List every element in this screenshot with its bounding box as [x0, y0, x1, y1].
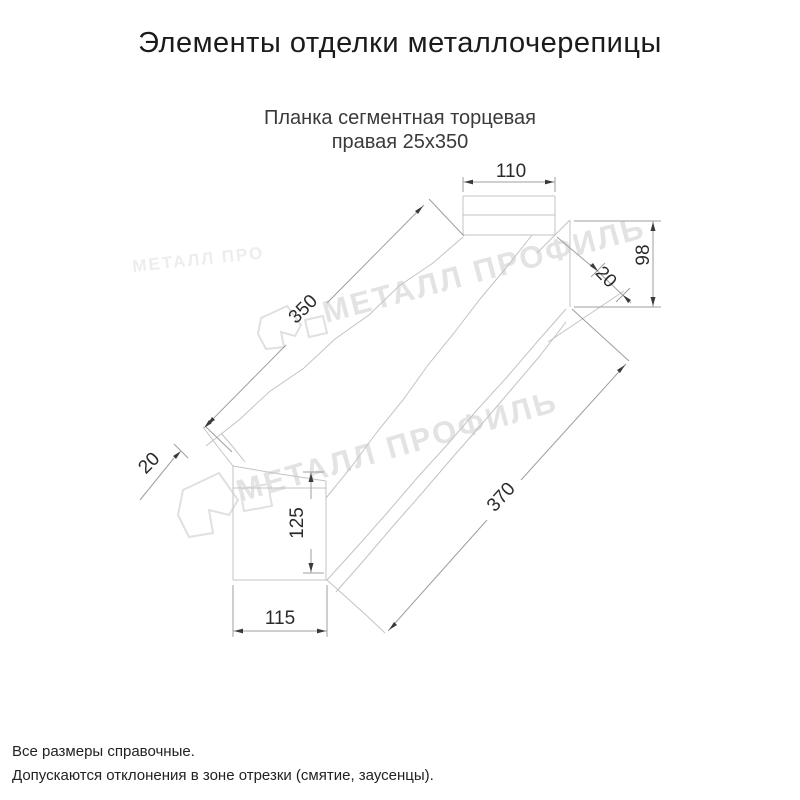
dim-label-20-left: 20: [134, 448, 164, 478]
dim-label-350: 350: [285, 291, 322, 328]
watermark-partial: МЕТАЛЛ ПРО: [131, 243, 265, 276]
dimension-top-width: 110: [463, 161, 555, 192]
dimension-tab-width: 115: [233, 585, 327, 637]
dim-label-125: 125: [287, 507, 308, 539]
watermark-partial-text: МЕТАЛЛ ПРО: [131, 243, 265, 276]
dim-label-115: 115: [265, 608, 295, 629]
technical-drawing: МЕТАЛЛ ПРО МЕТАЛЛ ПРОФИЛЬ МЕТАЛЛ ПРОФИЛЬ: [0, 0, 800, 800]
dim-label-98: 98: [633, 244, 654, 265]
dimension-left-end-fold: 20: [134, 420, 212, 500]
footer-note-2: Допускаются отклонения в зоне отрезки (с…: [12, 764, 434, 788]
watermark-upper: МЕТАЛЛ ПРОФИЛЬ: [258, 210, 649, 349]
dim-label-110: 110: [496, 161, 526, 182]
watermark-lower: МЕТАЛЛ ПРОФИЛЬ: [178, 383, 562, 537]
footer-note-1: Все размеры справочные.: [12, 740, 434, 764]
dim-label-370: 370: [483, 479, 520, 517]
page: { "title": "Элементы отделки металлочере…: [0, 0, 800, 800]
footer-notes: Все размеры справочные. Допускаются откл…: [12, 740, 434, 788]
